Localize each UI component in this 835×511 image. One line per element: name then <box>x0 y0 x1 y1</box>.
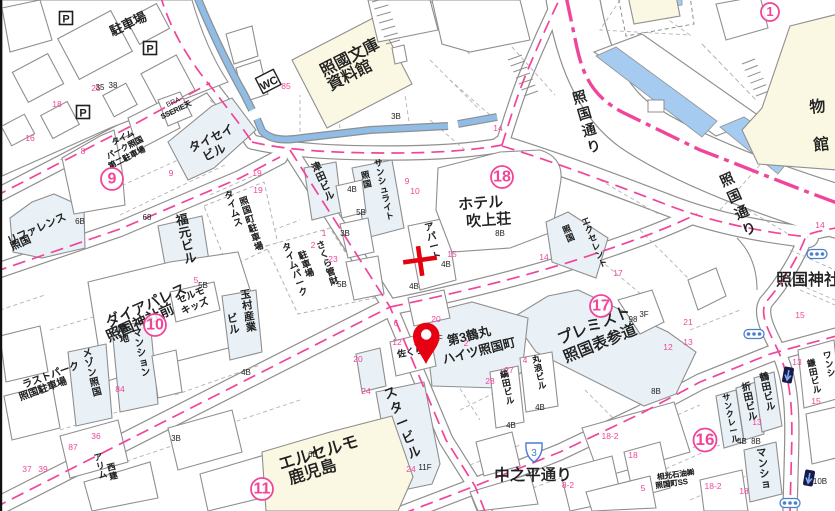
svg-text:24: 24 <box>361 386 371 396</box>
svg-text:P: P <box>62 13 69 25</box>
svg-text:19: 19 <box>253 185 263 195</box>
svg-text:87: 87 <box>68 442 78 452</box>
svg-text:19: 19 <box>252 168 262 178</box>
svg-text:9: 9 <box>108 171 117 188</box>
svg-text:8B: 8B <box>651 387 661 396</box>
svg-text:14: 14 <box>493 123 503 133</box>
svg-text:16: 16 <box>25 133 35 143</box>
svg-text:3: 3 <box>531 448 537 459</box>
svg-text:68: 68 <box>143 213 152 222</box>
svg-text:5B: 5B <box>337 280 347 289</box>
svg-text:12: 12 <box>663 342 673 352</box>
svg-text:98: 98 <box>629 315 638 324</box>
svg-text:3B: 3B <box>340 229 350 238</box>
svg-text:6: 6 <box>394 318 399 328</box>
svg-text:85: 85 <box>281 81 291 91</box>
svg-text:18: 18 <box>52 99 62 109</box>
svg-text:館: 館 <box>813 135 831 155</box>
svg-text:6B: 6B <box>308 450 318 459</box>
svg-text:9: 9 <box>169 168 174 178</box>
svg-text:2: 2 <box>464 338 469 348</box>
svg-text:15: 15 <box>447 249 457 259</box>
svg-text:9: 9 <box>405 176 410 186</box>
svg-text:15: 15 <box>811 396 821 406</box>
svg-text:35: 35 <box>96 83 105 92</box>
svg-text:11: 11 <box>254 481 271 498</box>
svg-text:84: 84 <box>115 384 125 394</box>
svg-text:18: 18 <box>739 486 749 496</box>
svg-text:37: 37 <box>22 464 32 474</box>
svg-text:ル: ル <box>228 323 240 337</box>
svg-text:10: 10 <box>410 186 420 196</box>
svg-text:13: 13 <box>792 357 802 367</box>
svg-text:14: 14 <box>539 252 549 262</box>
svg-text:36: 36 <box>91 431 101 441</box>
svg-text:3B: 3B <box>391 112 401 121</box>
svg-text:1: 1 <box>322 228 327 238</box>
svg-text:中之平通り: 中之平通り <box>494 466 572 484</box>
svg-text:1: 1 <box>766 4 773 19</box>
svg-text:18-2: 18-2 <box>704 481 721 491</box>
svg-text:8B: 8B <box>495 229 505 238</box>
svg-text:4B: 4B <box>737 437 747 446</box>
svg-text:13: 13 <box>683 337 693 347</box>
svg-text:物: 物 <box>809 97 827 117</box>
svg-text:シ: シ <box>826 367 835 379</box>
svg-text:17: 17 <box>592 298 610 315</box>
svg-text:4B: 4B <box>535 403 545 412</box>
svg-text:4B: 4B <box>506 421 516 430</box>
svg-text:5: 5 <box>641 483 646 493</box>
svg-text:4B: 4B <box>441 260 451 269</box>
svg-text:4B: 4B <box>409 282 419 291</box>
svg-text:5B: 5B <box>198 281 208 290</box>
svg-text:ョ: ョ <box>760 479 771 491</box>
svg-text:2: 2 <box>311 240 316 250</box>
svg-text:20: 20 <box>353 354 363 364</box>
svg-text:18: 18 <box>628 450 638 460</box>
svg-text:10: 10 <box>146 317 164 334</box>
svg-text:18-2: 18-2 <box>601 431 618 441</box>
svg-text:3B: 3B <box>171 434 181 443</box>
svg-text:吹上荘: 吹上荘 <box>466 210 512 230</box>
svg-text:13: 13 <box>752 417 762 427</box>
svg-text:照国神社: 照国神社 <box>776 271 835 289</box>
svg-text:12: 12 <box>392 337 402 347</box>
svg-text:24: 24 <box>406 464 416 474</box>
svg-text:4: 4 <box>523 355 528 365</box>
svg-text:5B: 5B <box>356 208 366 217</box>
svg-text:14: 14 <box>815 220 825 230</box>
svg-text:8B: 8B <box>751 437 761 446</box>
svg-text:8-2: 8-2 <box>562 480 575 490</box>
svg-text:23: 23 <box>328 254 338 264</box>
svg-text:6B: 6B <box>75 217 85 226</box>
svg-text:18: 18 <box>493 169 511 186</box>
svg-text:8: 8 <box>81 146 86 156</box>
svg-text:21: 21 <box>683 317 693 327</box>
svg-text:11F: 11F <box>418 463 431 472</box>
svg-text:38: 38 <box>109 81 118 90</box>
svg-text:4B: 4B <box>347 185 357 194</box>
svg-text:27: 27 <box>504 365 514 375</box>
svg-text:39: 39 <box>38 464 48 474</box>
svg-text:4B: 4B <box>241 368 251 377</box>
svg-text:15: 15 <box>795 310 805 320</box>
svg-text:10B: 10B <box>813 477 827 486</box>
svg-text:17: 17 <box>613 268 623 278</box>
svg-text:P: P <box>79 107 86 119</box>
svg-text:20: 20 <box>431 314 441 324</box>
svg-text:3F: 3F <box>639 310 648 319</box>
svg-text:P: P <box>146 43 153 55</box>
svg-text:28: 28 <box>485 376 495 386</box>
svg-text:16: 16 <box>696 430 715 449</box>
